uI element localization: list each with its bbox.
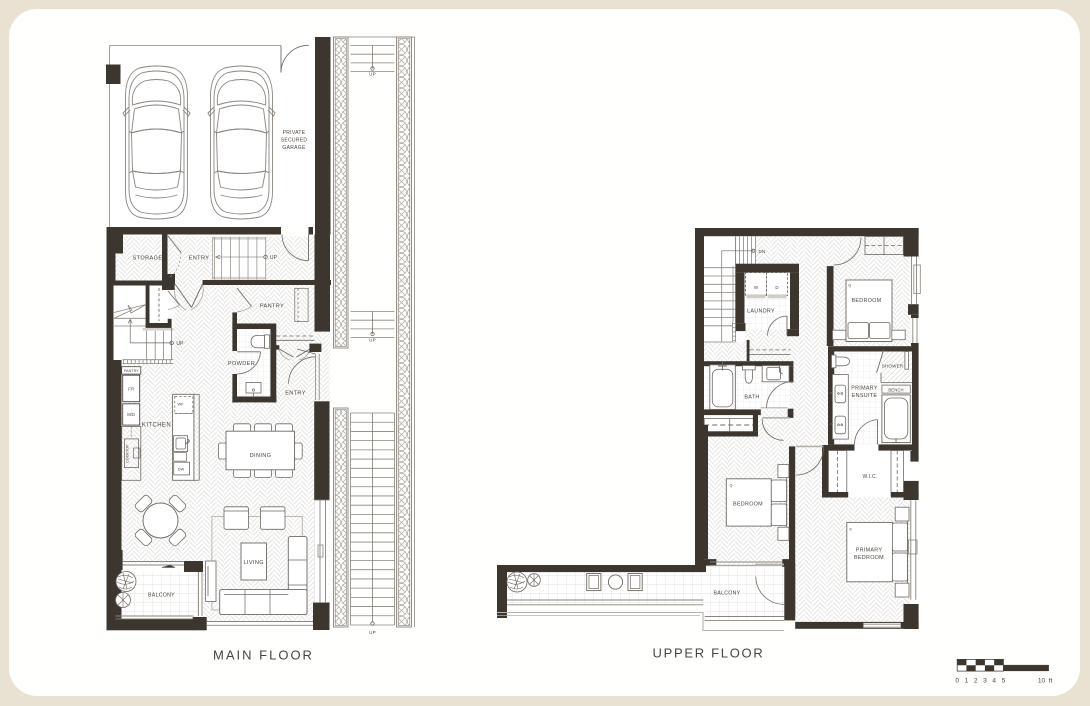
- svg-text:BEDROOM: BEDROOM: [854, 555, 884, 561]
- svg-text:PANTRY: PANTRY: [260, 304, 284, 310]
- svg-text:BALCONY: BALCONY: [714, 591, 741, 597]
- svg-text:COOKTOP: COOKTOP: [125, 444, 129, 463]
- svg-text:WF: WF: [177, 403, 184, 407]
- svg-text:UP: UP: [270, 255, 278, 261]
- svg-text:M/D: M/D: [127, 412, 135, 417]
- svg-text:W.I.C.: W.I.C.: [862, 474, 877, 480]
- svg-text:POWDER: POWDER: [228, 361, 255, 367]
- svg-text:DN: DN: [758, 249, 765, 254]
- svg-text:3: 3: [983, 678, 987, 685]
- svg-text:DINING: DINING: [250, 453, 272, 459]
- svg-text:STORAGE: STORAGE: [132, 256, 162, 262]
- svg-text:BENCH: BENCH: [888, 387, 903, 392]
- svg-text:MAIN FLOOR: MAIN FLOOR: [213, 648, 314, 663]
- svg-text:K: K: [849, 528, 852, 532]
- svg-text:5: 5: [1002, 678, 1006, 685]
- svg-text:LIVING: LIVING: [243, 560, 263, 566]
- svg-text:UP: UP: [369, 630, 376, 635]
- svg-text:PRIVATE: PRIVATE: [283, 130, 306, 136]
- svg-text:UPPER FLOOR: UPPER FLOOR: [653, 646, 765, 661]
- svg-text:ENTRY: ENTRY: [189, 256, 210, 262]
- svg-text:ft: ft: [1049, 678, 1053, 685]
- svg-text:SECURED: SECURED: [281, 138, 308, 144]
- svg-text:1: 1: [965, 678, 969, 685]
- svg-text:Q: Q: [848, 284, 851, 288]
- svg-text:FR: FR: [128, 387, 134, 392]
- svg-text:DW: DW: [178, 468, 185, 472]
- svg-text:KITCHEN: KITCHEN: [142, 423, 171, 429]
- svg-text:D: D: [775, 285, 778, 290]
- svg-text:ENTRY: ENTRY: [285, 391, 306, 397]
- svg-text:BALCONY: BALCONY: [148, 593, 175, 599]
- svg-text:BATH: BATH: [744, 394, 759, 400]
- svg-text:4: 4: [992, 678, 996, 685]
- svg-text:PRIMARY: PRIMARY: [851, 386, 878, 392]
- svg-text:UP: UP: [176, 341, 184, 347]
- svg-text:0: 0: [955, 678, 959, 685]
- svg-text:ENSUITE: ENSUITE: [852, 393, 878, 399]
- svg-text:2: 2: [974, 678, 978, 685]
- svg-text:Q: Q: [729, 483, 732, 487]
- svg-text:BEDROOM: BEDROOM: [852, 298, 882, 304]
- svg-text:LAUNDRY: LAUNDRY: [747, 309, 775, 315]
- svg-text:10: 10: [1038, 678, 1046, 685]
- svg-text:BEDROOM: BEDROOM: [733, 502, 763, 508]
- svg-text:PANTRY: PANTRY: [124, 369, 139, 373]
- svg-text:GARAGE: GARAGE: [282, 145, 306, 151]
- svg-text:UP: UP: [369, 338, 376, 343]
- svg-text:PRIMARY: PRIMARY: [856, 548, 883, 554]
- svg-text:SHOWER: SHOWER: [882, 364, 904, 369]
- svg-text:UP: UP: [369, 72, 376, 77]
